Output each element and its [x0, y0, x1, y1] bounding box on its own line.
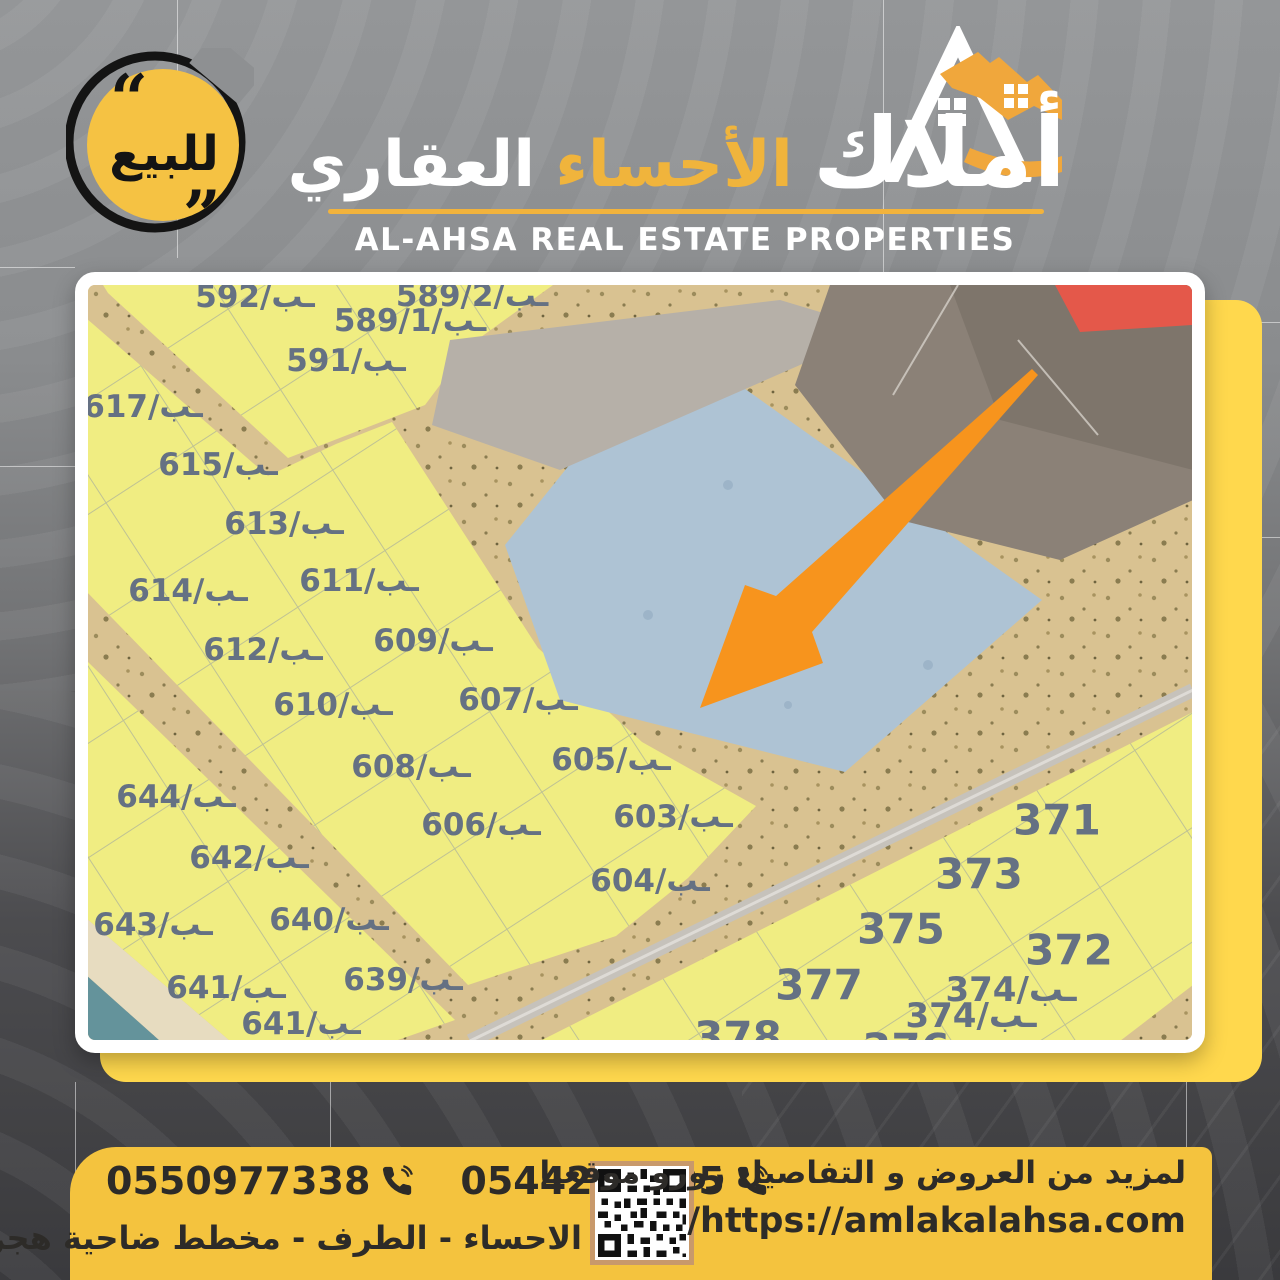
grid-line — [1186, 1082, 1187, 1147]
location-text: الاحساء - الطرف - مخطط ضاحية هجر — [0, 1219, 582, 1257]
phone-icon — [380, 1164, 414, 1198]
plot-label: 377 — [775, 961, 863, 1010]
plot-label: 613/ـب — [224, 506, 344, 542]
plot-label: 644/ـب — [116, 779, 236, 815]
plot-label: 612/ـب — [203, 632, 323, 668]
plot-label: 373 — [935, 850, 1023, 899]
plot-label: 592/ـب — [195, 285, 315, 315]
plot-label: 609/ـب — [373, 623, 493, 659]
brand-arabic: أملاك الأحساء العقاري — [288, 110, 1067, 202]
cta-block: لمزيد من العروض و التفاصيل زورو موقعنا /… — [700, 1155, 1186, 1241]
for-sale-label: للبيع — [109, 126, 219, 182]
footer-panel: 0550977338 0544299895 الاحساء - الطرف - … — [70, 1147, 1212, 1280]
plot-label: 642/ـب — [189, 840, 309, 876]
plot-label: 608/ـب — [351, 749, 471, 785]
plot-label: 641/ـب — [166, 970, 286, 1006]
for-sale-badge: “ „ للبيع — [66, 48, 254, 236]
grid-line — [330, 1082, 331, 1147]
cta-text: لمزيد من العروض و التفاصيل زورو موقعنا — [700, 1155, 1186, 1191]
plot-label: 617/ـب — [88, 389, 203, 425]
plot-label: 614/ـب — [128, 573, 248, 609]
phone-item[interactable]: 0550977338 — [106, 1159, 414, 1203]
plot-label: 606/ـب — [421, 807, 541, 843]
poster: “ „ للبيع أملاك الأحساء العقاري AL-AHSA … — [0, 0, 1280, 1280]
plot-label: 603/ـب — [613, 799, 733, 835]
plot-label: 641/ـب — [241, 1006, 361, 1040]
plot-label: 615/ـب — [158, 447, 278, 483]
plot-label: 639/ـب — [343, 962, 463, 998]
plot-label: 589/1/ـب — [334, 303, 487, 339]
brand-english: AL-AHSA REAL ESTATE PROPERTIES — [300, 222, 1070, 258]
plot-label: 378 — [694, 1013, 782, 1041]
plot-label: 610/ـب — [273, 687, 393, 723]
plot-label: 372 — [1025, 926, 1113, 975]
plot-label: 605/ـب — [551, 742, 671, 778]
plot-label: 643/ـب — [93, 907, 213, 943]
website-row[interactable]: /https://amlakalahsa.com — [700, 1201, 1186, 1241]
plot-label: 591/ـب — [286, 343, 406, 379]
brand-arabic-main: أملاك — [813, 110, 1066, 196]
grid-line — [0, 466, 75, 467]
website-link[interactable]: /https://amlakalahsa.com — [687, 1201, 1186, 1241]
plot-label: 375 — [857, 905, 945, 954]
plot-label: 607/ـب — [458, 682, 578, 718]
plot-label: 604/ـب — [590, 863, 710, 899]
plot-label: 371 — [1013, 796, 1101, 845]
plot-label: 611/ـب — [299, 563, 419, 599]
brand-arabic-mid: الأحساء — [555, 128, 793, 202]
phone-number-left[interactable]: 0550977338 — [106, 1159, 370, 1203]
location-row: الاحساء - الطرف - مخطط ضاحية هجر — [106, 1219, 592, 1257]
logo-block: أملاك الأحساء العقاري AL-AHSA REAL ESTAT… — [300, 26, 1070, 258]
plot-label: 376 — [862, 1025, 950, 1041]
plot-label: 640/ـب — [269, 902, 389, 938]
map-image: 592/ـب589/2/ـب589/1/ـب591/ـب617/ـب615/ـب… — [75, 272, 1205, 1053]
brand-arabic-end: العقاري — [288, 128, 536, 202]
logo-divider — [328, 209, 1044, 214]
grid-line — [0, 267, 75, 268]
